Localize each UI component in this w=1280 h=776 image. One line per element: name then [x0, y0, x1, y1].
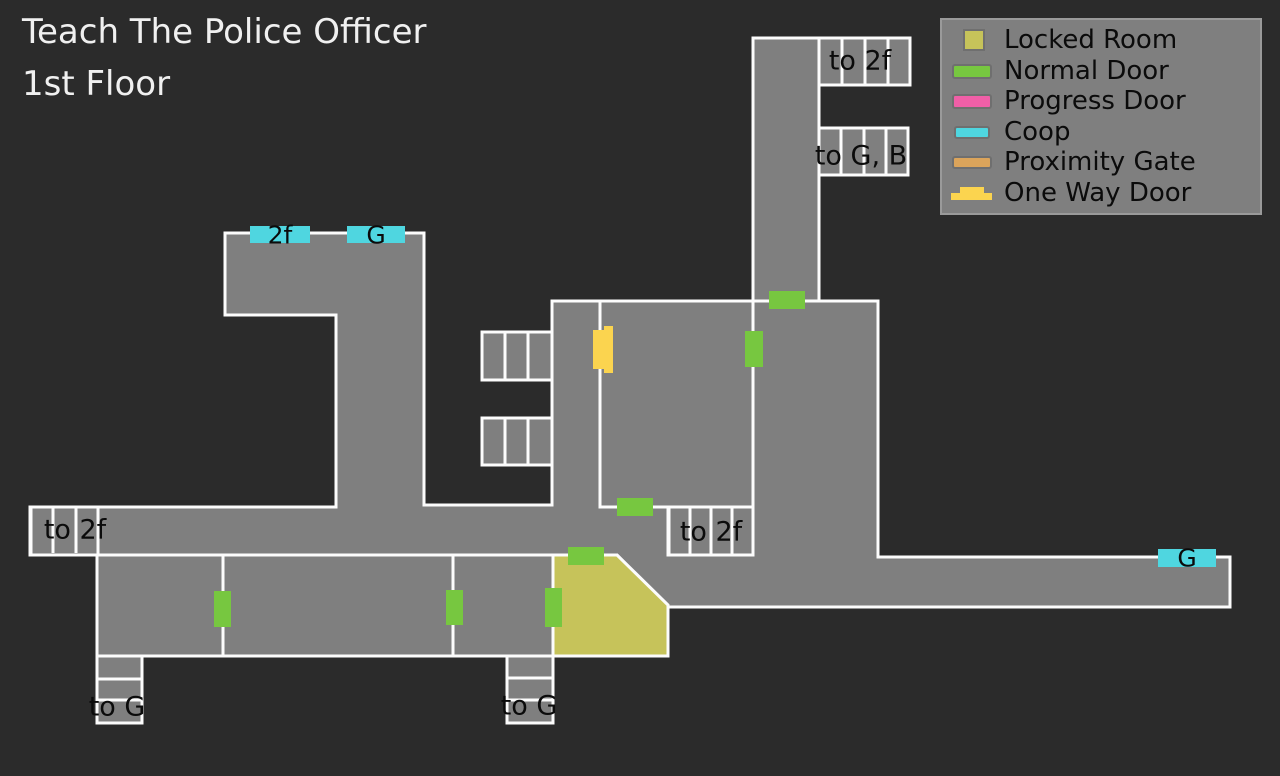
normal-door: [617, 498, 653, 516]
normal-door: [545, 588, 562, 627]
label-top-stairs-down: to G, B: [815, 141, 907, 172]
screenshot-root: { "title": { "line1": "Teach The Police …: [0, 0, 1280, 776]
normal-door: [745, 331, 763, 367]
legend-item-label: One Way Door: [1004, 180, 1191, 206]
normal-door: [568, 547, 604, 565]
legend-item-coop: Coop: [948, 117, 1254, 147]
legend: Locked Room Normal Door Progress Door Co…: [940, 18, 1262, 215]
coop-swatch-icon: [948, 120, 996, 144]
locked-room-swatch-icon: [948, 28, 996, 52]
normal-door: [446, 590, 463, 625]
south-room-middle: [223, 555, 453, 656]
normal-door: [214, 591, 231, 627]
north-corridor: [753, 38, 819, 301]
proximity-gate-swatch-icon: [948, 150, 996, 174]
map-title-line2: 1st Floor: [22, 64, 170, 104]
map-title: Teach The Police Officer1st Floor: [22, 6, 426, 110]
central-room: [600, 301, 753, 507]
south-room-east: [453, 555, 553, 656]
legend-item-label: Progress Door: [1004, 88, 1186, 114]
legend-item-locked-room: Locked Room: [948, 25, 1254, 55]
legend-item-progress-door: Progress Door: [948, 86, 1254, 116]
progress-door-swatch-icon: [948, 89, 996, 113]
west-stairs-upper: [482, 332, 552, 380]
south-room-west: [97, 555, 223, 656]
label-center-stairs: to 2f: [680, 517, 744, 548]
legend-item-normal-door: Normal Door: [948, 56, 1254, 86]
one-way-door-swatch-icon: [948, 181, 996, 205]
label-west-stairs: to 2f: [44, 515, 108, 546]
one-way-door: [593, 326, 613, 373]
legend-item-one-way-door: One Way Door: [948, 178, 1254, 208]
legend-item-proximity-gate: Proximity Gate: [948, 147, 1254, 177]
label-south-stairs: to G: [501, 691, 558, 722]
label-coop-2f: 2f: [268, 221, 294, 250]
west-stairs-lower: [482, 418, 552, 465]
normal-door-swatch-icon: [948, 59, 996, 83]
legend-item-label: Coop: [1004, 119, 1070, 145]
label-southwest-stairs: to G: [89, 692, 146, 723]
label-coop-g-right: G: [1177, 544, 1196, 573]
legend-item-label: Proximity Gate: [1004, 149, 1196, 175]
legend-item-label: Locked Room: [1004, 27, 1177, 53]
label-coop-g-top: G: [366, 221, 385, 250]
normal-door: [769, 291, 805, 309]
label-top-stairs-up: to 2f: [829, 46, 893, 77]
legend-item-label: Normal Door: [1004, 58, 1169, 84]
map-title-line1: Teach The Police Officer: [22, 12, 426, 52]
